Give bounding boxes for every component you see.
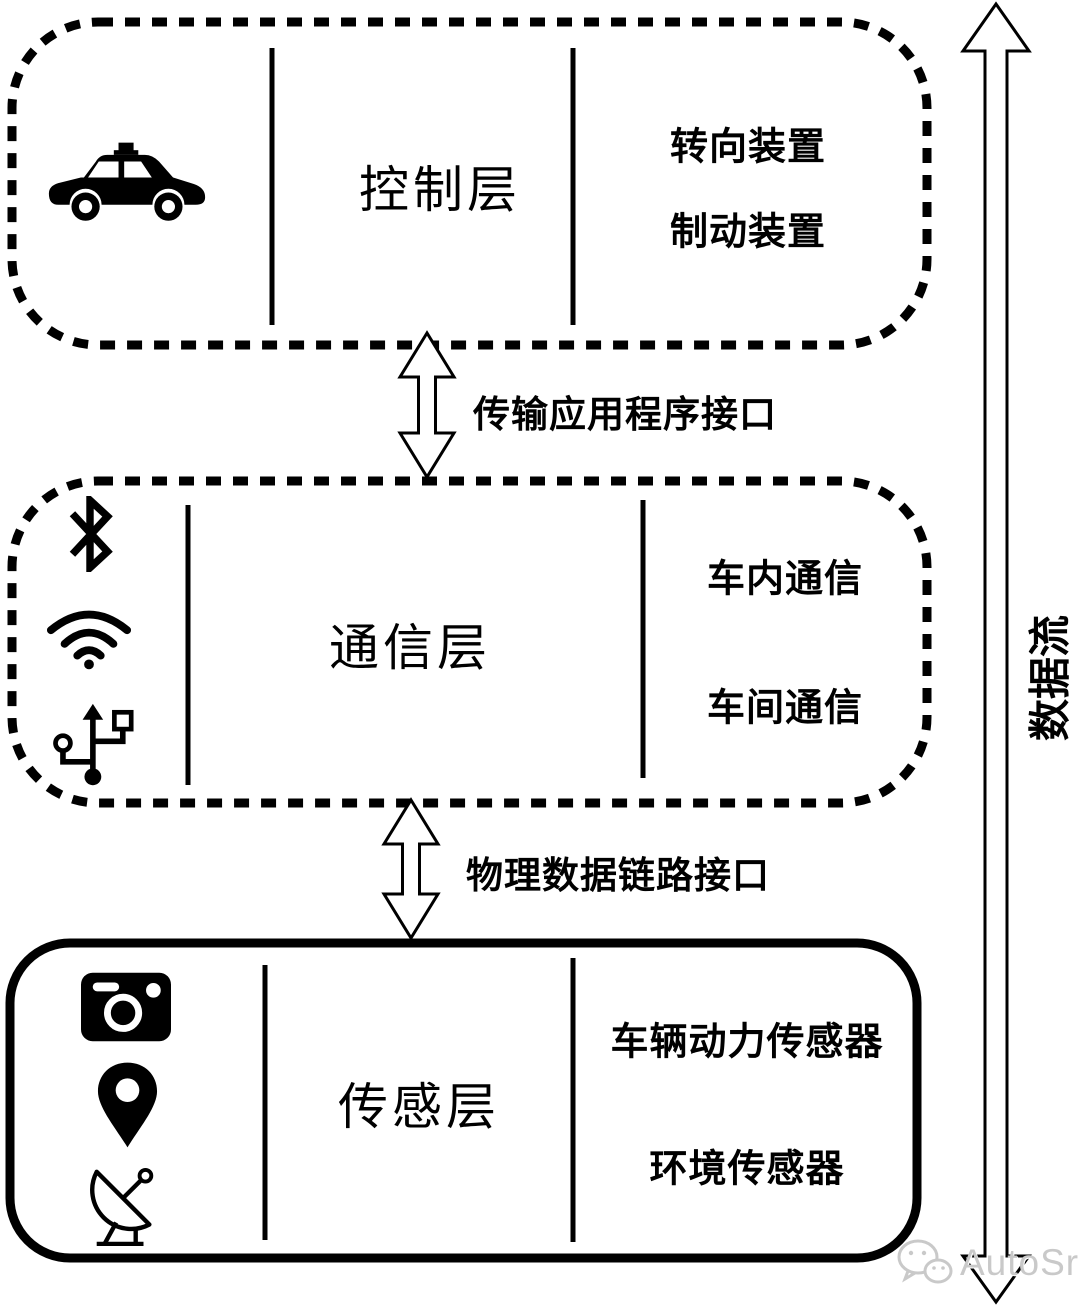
sensing-layer-title: 传感层 (338, 1067, 500, 1139)
location-pin-icon (95, 1061, 160, 1149)
watermark: AutoSrc (896, 1238, 1080, 1288)
watermark-text: AutoSrc (960, 1242, 1080, 1284)
satellite-dish-icon (85, 1164, 163, 1246)
transport-api-label: 传输应用程序接口 (473, 384, 777, 438)
usb-icon (48, 701, 134, 789)
inter-vehicle-comm-label: 车间通信 (707, 677, 863, 732)
braking-device-label: 制动装置 (670, 201, 826, 256)
control-layer-title: 控制层 (359, 150, 521, 222)
bluetooth-icon (63, 496, 117, 572)
diagram-canvas: 控制层 转向装置 制动装置 传输应用程序接口 通信层 车内通信 车间通信 物理数… (0, 0, 1080, 1309)
communication-layer-title: 通信层 (329, 608, 491, 680)
data-flow-label: 数据流 (1017, 615, 1078, 741)
car-icon (47, 142, 207, 228)
interface-arrow-top (400, 333, 454, 477)
vehicle-dynamics-sensor-label: 车辆动力传感器 (610, 1011, 883, 1066)
steering-device-label: 转向装置 (670, 116, 826, 171)
environment-sensor-label: 环境传感器 (649, 1138, 844, 1193)
wechat-logo-icon (896, 1238, 954, 1288)
physical-datalink-label: 物理数据链路接口 (466, 845, 770, 899)
camera-icon (81, 966, 171, 1046)
interface-arrow-bottom (384, 800, 438, 938)
in-vehicle-comm-label: 车内通信 (707, 548, 863, 603)
wifi-icon (46, 606, 132, 670)
